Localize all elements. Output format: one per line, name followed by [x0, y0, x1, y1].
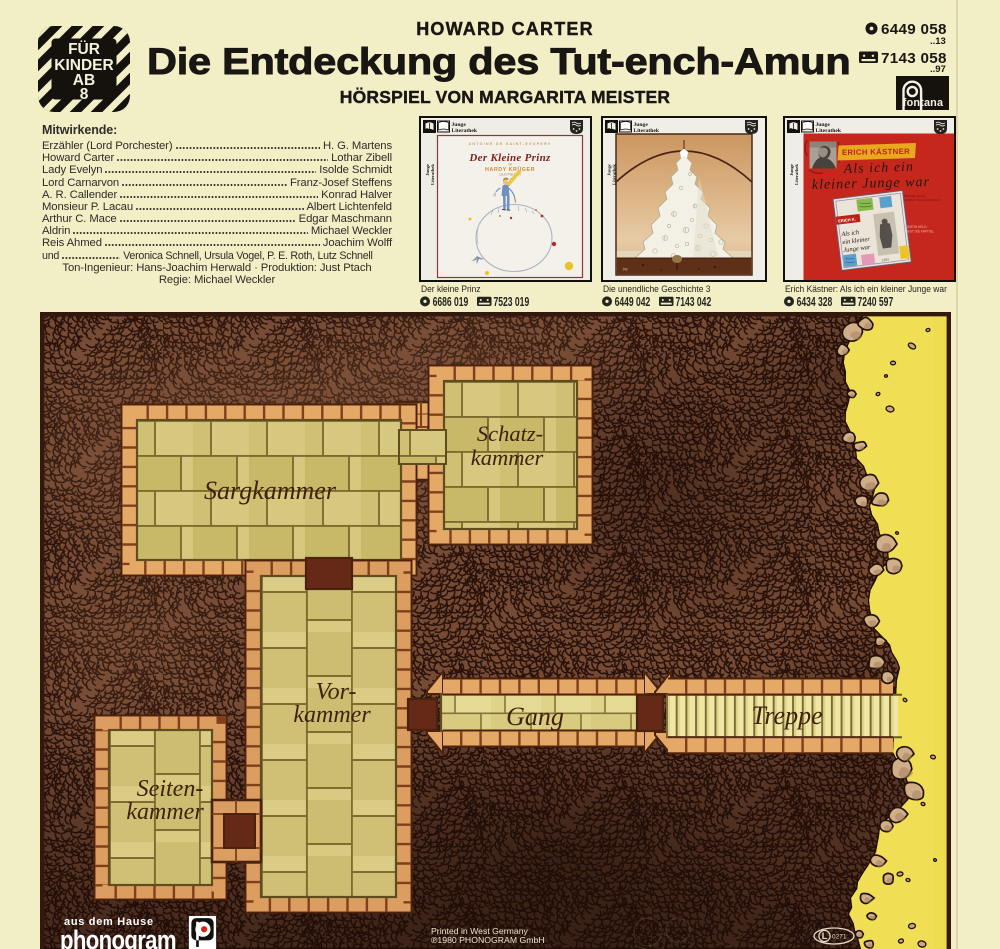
svg-text:ERICH KÄSTNER: ERICH KÄSTNER	[842, 147, 910, 157]
svg-text:Schatz-: Schatz-	[477, 421, 543, 446]
svg-text:Treppe: Treppe	[751, 701, 822, 730]
svg-text:kammer: kammer	[126, 799, 204, 825]
svg-text:7523 019: 7523 019	[494, 295, 530, 308]
svg-text:6449 042: 6449 042	[615, 295, 651, 308]
svg-text:ANTOINE DE SAINT-EXUPERY: ANTOINE DE SAINT-EXUPERY	[468, 142, 551, 146]
svg-text:7240 597: 7240 597	[858, 295, 894, 308]
svg-text:L: L	[822, 931, 828, 941]
svg-text:kammer: kammer	[471, 445, 544, 470]
svg-text:Sargkammer: Sargkammer	[204, 476, 337, 505]
svg-text:BEARBEITUNG DES BUCHS: BEARBEITUNG DES BUCHS	[901, 198, 941, 202]
svg-text:kammer: kammer	[293, 702, 371, 728]
svg-text:fontana: fontana	[903, 97, 944, 109]
svg-text:6686 019: 6686 019	[433, 295, 469, 308]
svg-text:7143 042: 7143 042	[676, 295, 712, 308]
svg-text:0271: 0271	[832, 934, 847, 941]
svg-text:6434 328: 6434 328	[797, 295, 833, 308]
svg-text:LIEST DIE KAPITEL: LIEST DIE KAPITEL	[905, 230, 934, 234]
svg-text:MARTIN HELD: MARTIN HELD	[905, 225, 927, 229]
svg-text:jrg: jrg	[622, 266, 628, 271]
svg-text:kleiner Junge war: kleiner Junge war	[812, 175, 930, 193]
svg-text:8: 8	[80, 86, 89, 103]
svg-text:FÜR: FÜR	[68, 41, 100, 58]
svg-text:Gang: Gang	[506, 702, 564, 731]
svg-text:Als ich ein: Als ich ein	[843, 159, 915, 176]
svg-text:mit: mit	[508, 163, 513, 167]
